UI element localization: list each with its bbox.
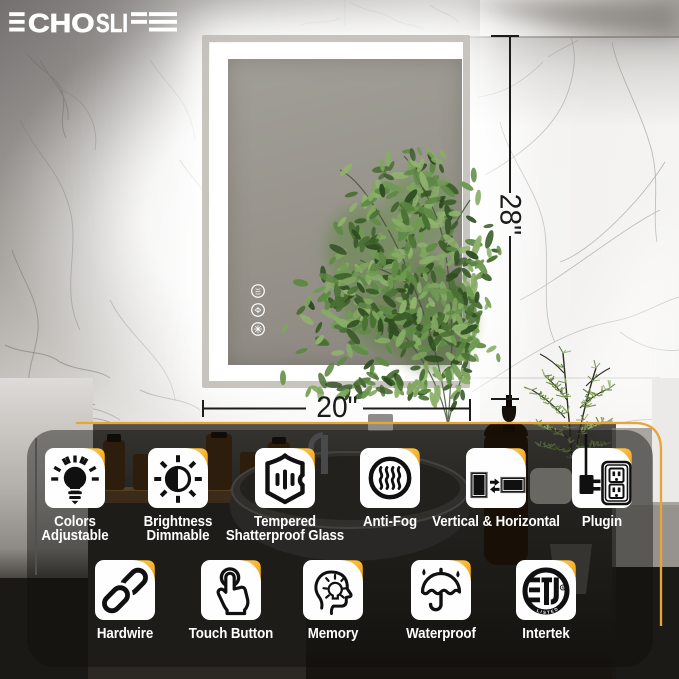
- svg-text:CHO: CHO: [28, 11, 95, 34]
- svg-text:SLI: SLI: [96, 11, 128, 34]
